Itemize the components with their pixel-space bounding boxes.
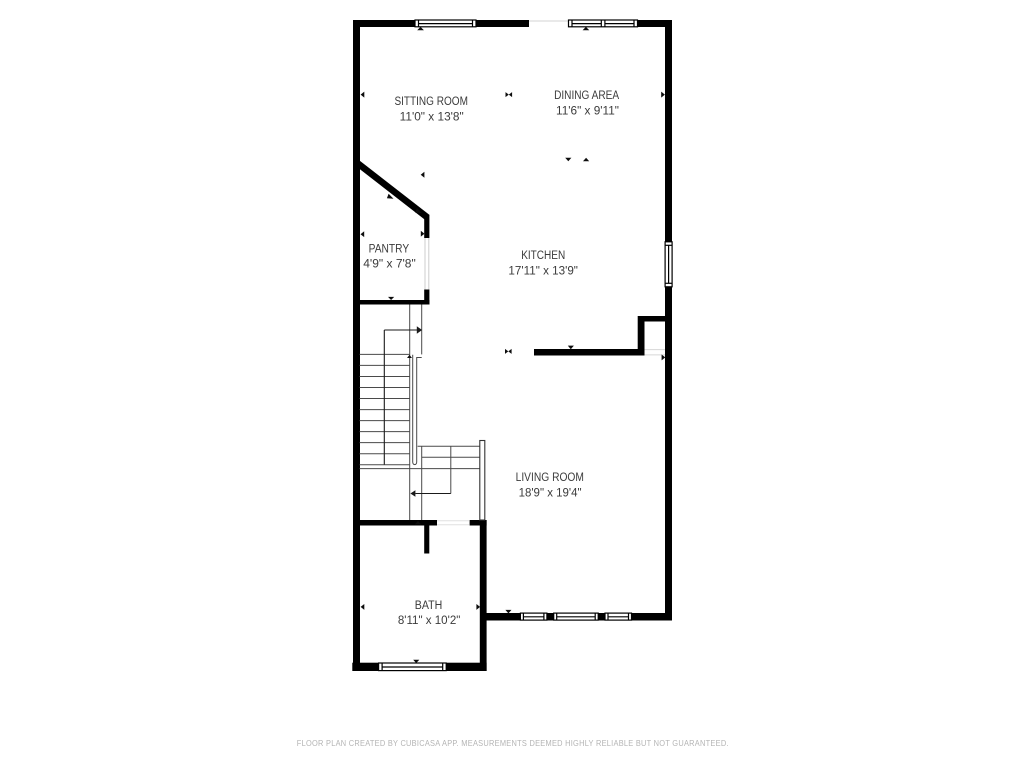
svg-text:SITTING ROOM: SITTING ROOM xyxy=(394,96,468,108)
svg-text:4'9" x 7'8": 4'9" x 7'8" xyxy=(363,259,416,271)
svg-text:11'0" x 13'8": 11'0" x 13'8" xyxy=(400,111,464,123)
svg-text:BATH: BATH xyxy=(415,600,443,612)
svg-text:LIVING ROOM: LIVING ROOM xyxy=(516,472,584,484)
svg-text:17'11" x 13'9": 17'11" x 13'9" xyxy=(508,266,578,278)
svg-text:PANTRY: PANTRY xyxy=(369,244,410,256)
svg-text:8'11" x 10'2": 8'11" x 10'2" xyxy=(398,615,461,627)
svg-text:KITCHEN: KITCHEN xyxy=(521,250,565,262)
svg-text:DINING AREA: DINING AREA xyxy=(554,90,619,102)
svg-text:FLOOR PLAN CREATED BY CUBICASA: FLOOR PLAN CREATED BY CUBICASA APP. MEAS… xyxy=(297,738,729,748)
svg-text:18'9" x 19'4": 18'9" x 19'4" xyxy=(519,488,582,500)
svg-text:11'6" x 9'11": 11'6" x 9'11" xyxy=(556,106,619,118)
